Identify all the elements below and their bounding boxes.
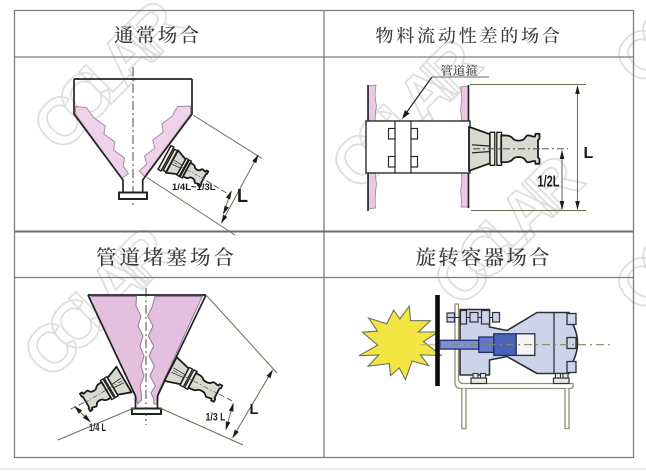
svg-text:1/4L~1/3L: 1/4L~1/3L xyxy=(172,182,216,193)
svg-text:L: L xyxy=(584,145,594,162)
svg-text:1/3 L: 1/3 L xyxy=(206,412,226,424)
svg-text:1/4 L: 1/4 L xyxy=(89,422,106,434)
svg-text:1/2L: 1/2L xyxy=(538,174,560,191)
svg-text:L: L xyxy=(237,186,248,206)
svg-text:L: L xyxy=(250,402,259,418)
